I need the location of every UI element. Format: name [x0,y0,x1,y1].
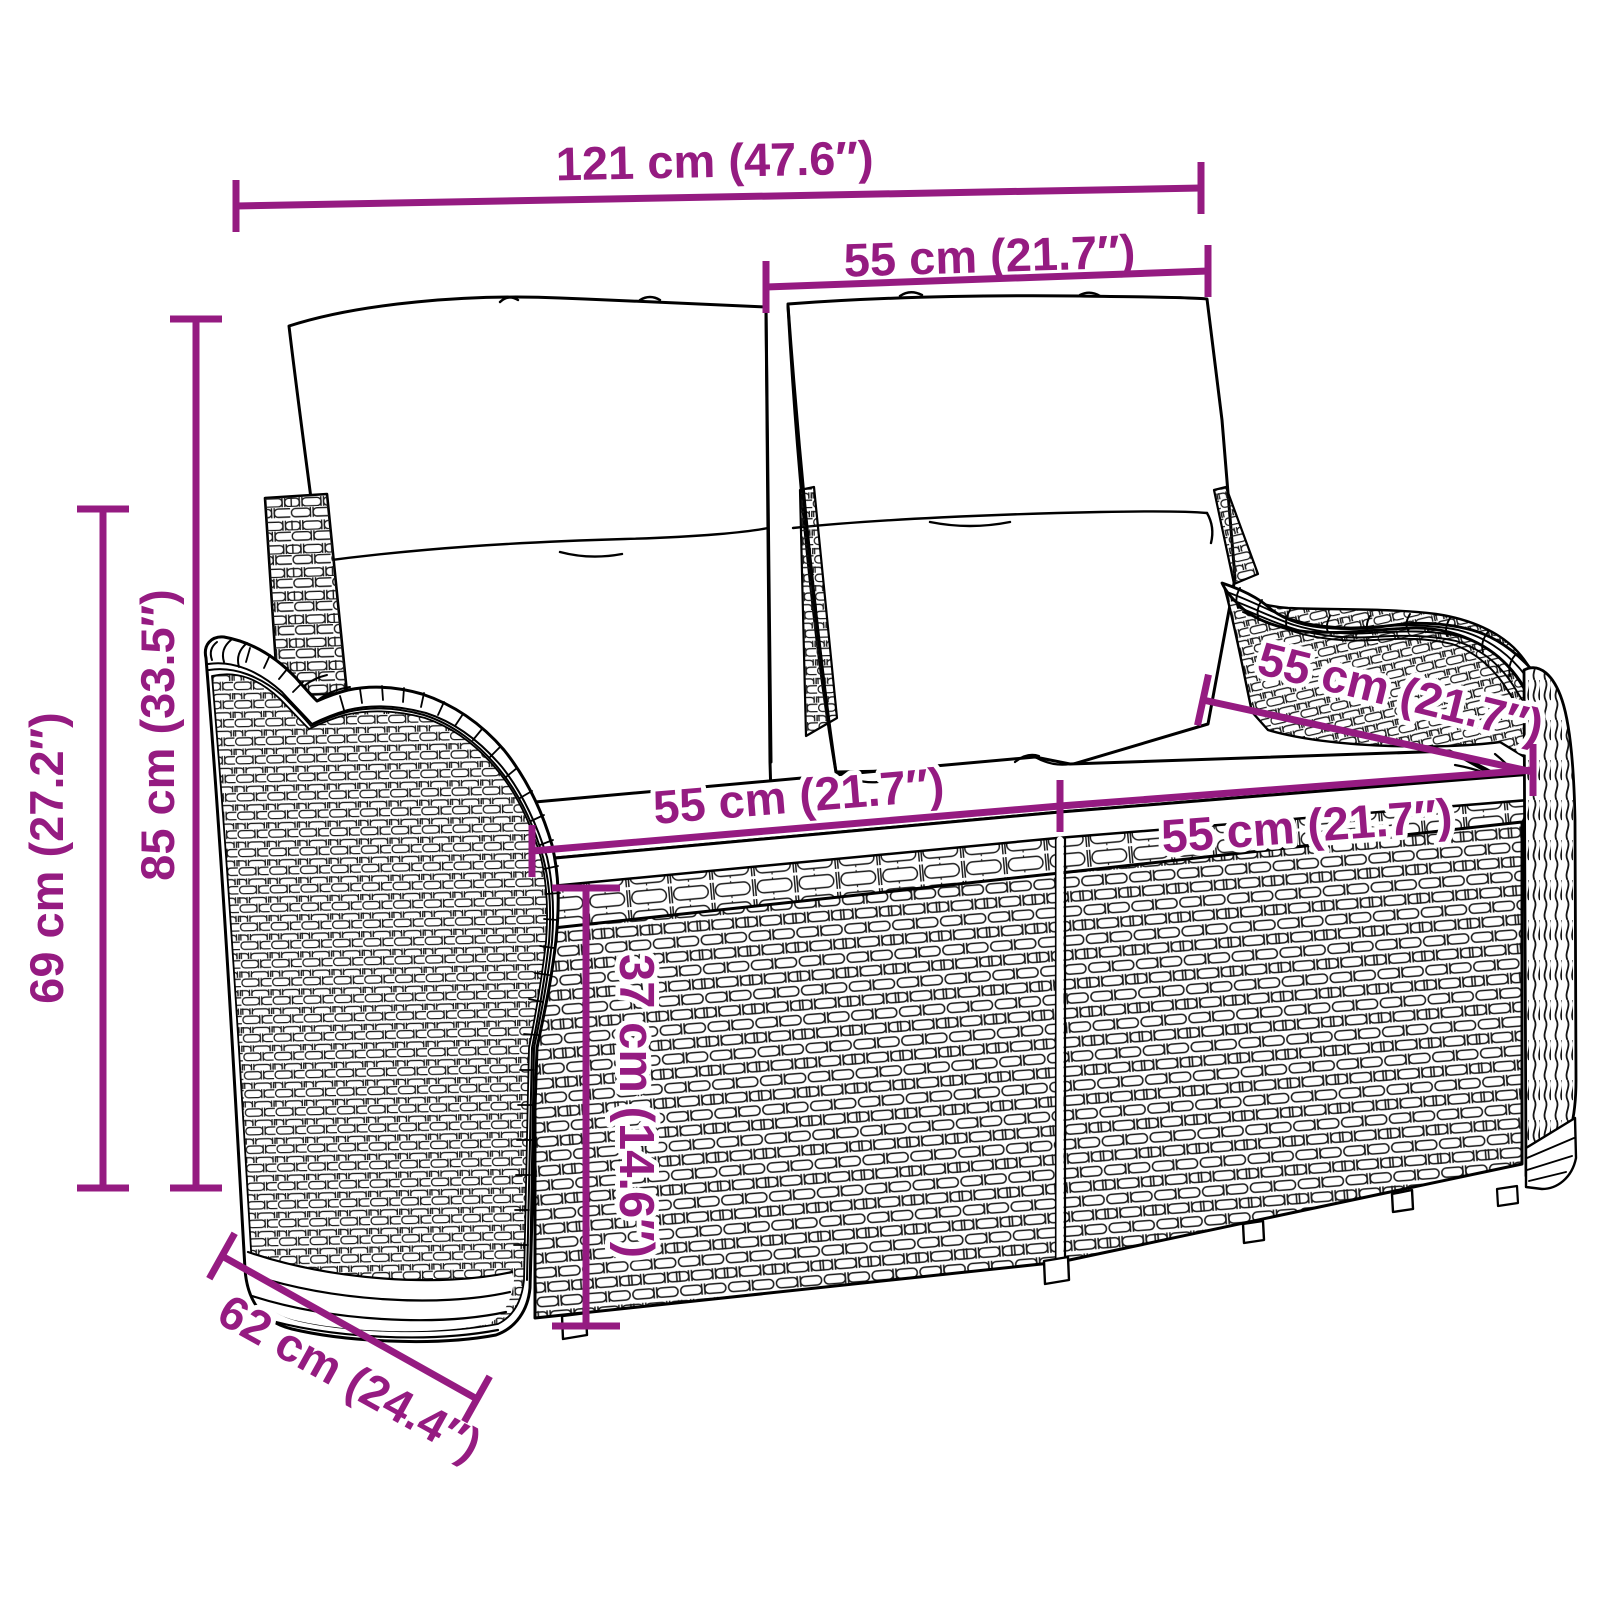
svg-text:85 cm (33.5″): 85 cm (33.5″) [131,589,184,881]
svg-text:121 cm (47.6″): 121 cm (47.6″) [555,131,874,191]
svg-text:37 cm (14.6″): 37 cm (14.6″) [609,954,663,1258]
svg-text:69 cm (27.2″): 69 cm (27.2″) [20,712,73,1004]
